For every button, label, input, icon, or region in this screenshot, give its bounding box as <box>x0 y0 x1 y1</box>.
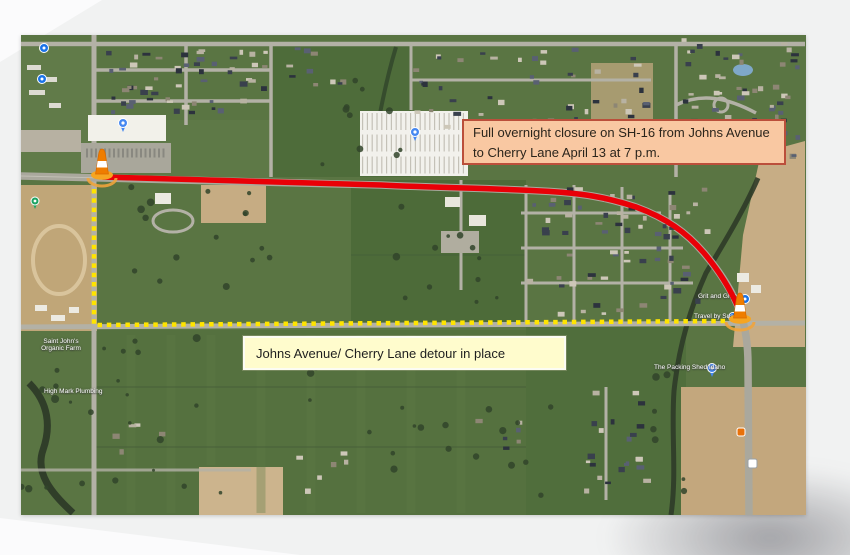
route-overlay <box>21 35 806 515</box>
satellite-map: Saint John's Organic Farm High Mark Plum… <box>21 35 806 515</box>
slide-canvas: Saint John's Organic Farm High Mark Plum… <box>0 0 850 555</box>
closure-route-line <box>103 177 738 307</box>
traffic-cone-left-icon <box>88 149 116 186</box>
traffic-cone-right-icon <box>726 293 754 330</box>
decorative-corner-shape <box>0 518 300 555</box>
detour-callout: Johns Avenue/ Cherry Lane detour in plac… <box>243 336 566 370</box>
closure-callout: Full overnight closure on SH-16 from Joh… <box>462 119 786 165</box>
detour-route-line <box>94 189 729 325</box>
